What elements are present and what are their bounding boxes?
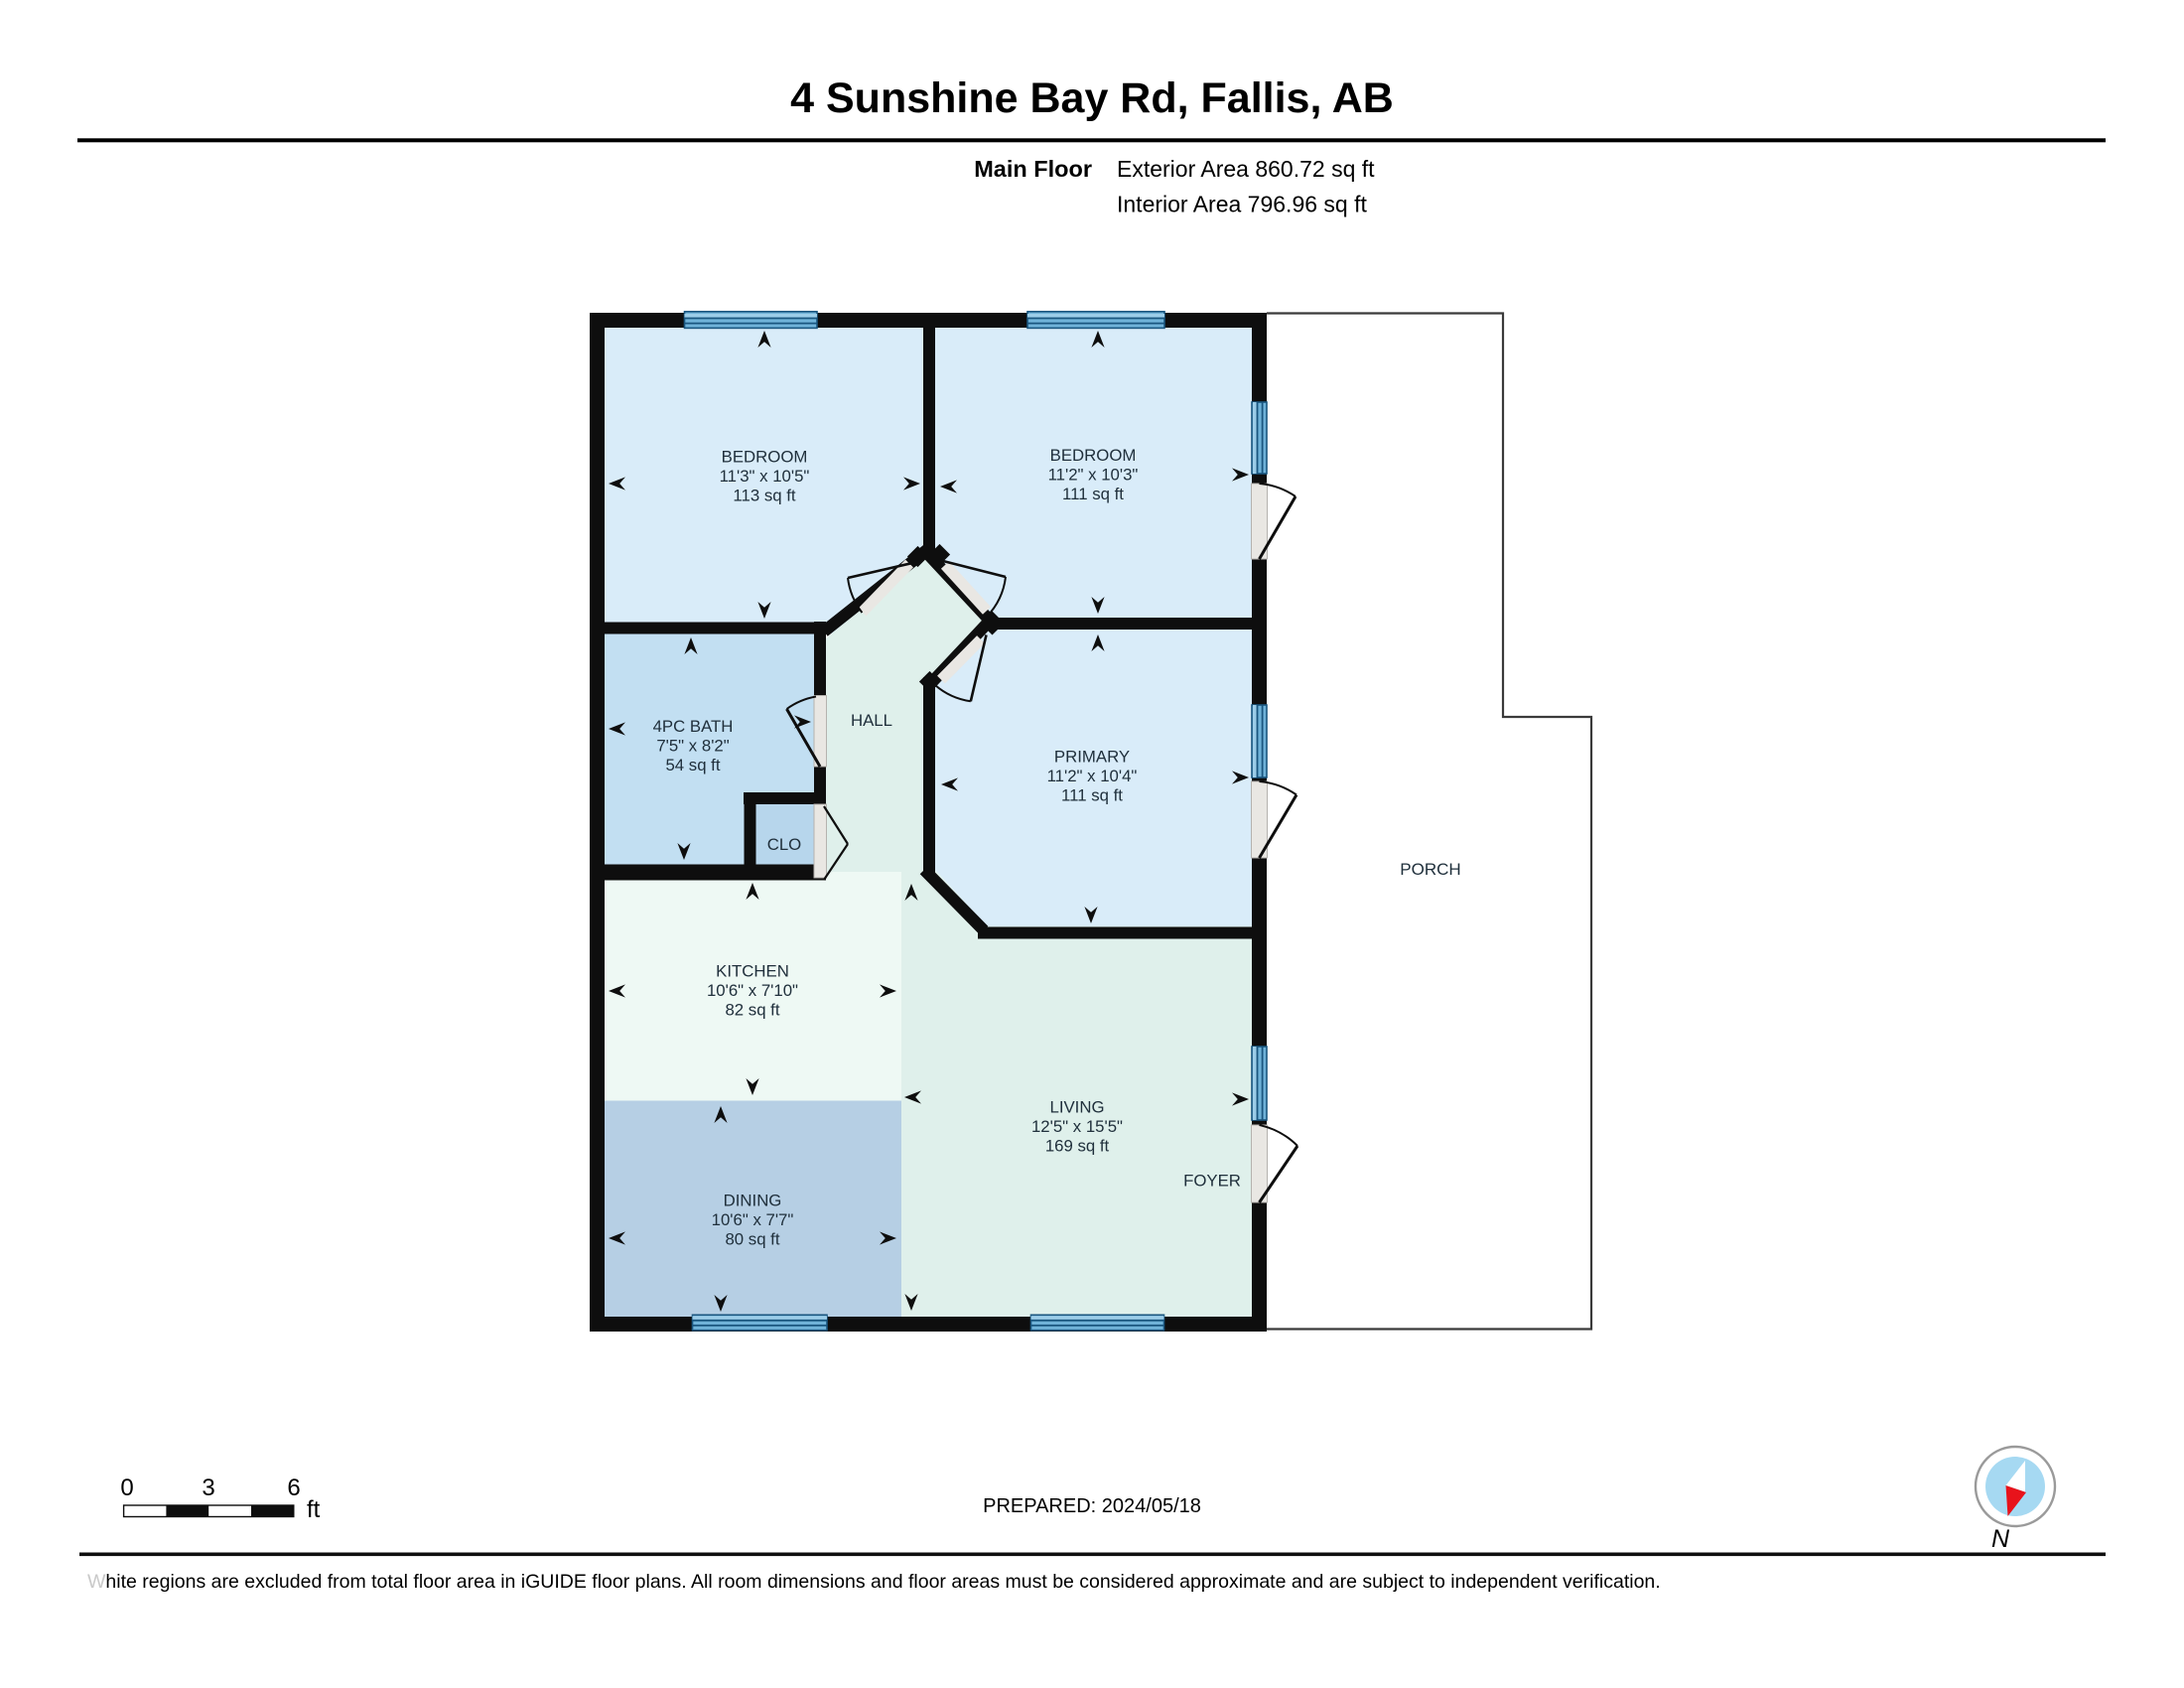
svg-text:169 sq ft: 169 sq ft xyxy=(1045,1137,1110,1156)
svg-text:Main Floor: Main Floor xyxy=(974,156,1092,182)
svg-text:11'3" x 10'5": 11'3" x 10'5" xyxy=(720,467,810,486)
svg-text:10'6" x 7'7": 10'6" x 7'7" xyxy=(712,1210,794,1229)
svg-text:10'6" x 7'10": 10'6" x 7'10" xyxy=(707,981,798,1000)
svg-text:7'5" x 8'2": 7'5" x 8'2" xyxy=(656,737,729,756)
svg-text:PRIMARY: PRIMARY xyxy=(1054,748,1130,767)
svg-text:11'2" x 10'3": 11'2" x 10'3" xyxy=(1048,466,1139,485)
svg-text:KITCHEN: KITCHEN xyxy=(716,962,789,981)
svg-text:FOYER: FOYER xyxy=(1183,1172,1241,1191)
svg-text:80 sq ft: 80 sq ft xyxy=(725,1230,779,1249)
svg-text:PORCH: PORCH xyxy=(1400,860,1460,879)
svg-text:6: 6 xyxy=(287,1475,300,1501)
svg-text:White regions are excluded fro: White regions are excluded from total fl… xyxy=(87,1571,1661,1593)
svg-text:BEDROOM: BEDROOM xyxy=(722,448,808,467)
svg-text:HALL: HALL xyxy=(851,711,892,730)
svg-text:111 sq ft: 111 sq ft xyxy=(1061,786,1123,805)
svg-text:N: N xyxy=(1991,1525,2010,1553)
svg-text:PREPARED: 2024/05/18: PREPARED: 2024/05/18 xyxy=(983,1495,1201,1517)
svg-text:0: 0 xyxy=(120,1475,133,1501)
svg-text:11'2" x 10'4": 11'2" x 10'4" xyxy=(1047,767,1138,785)
svg-text:Exterior Area 860.72 sq ft: Exterior Area 860.72 sq ft xyxy=(1117,156,1375,182)
svg-text:4 Sunshine Bay Rd, Fallis, AB: 4 Sunshine Bay Rd, Fallis, AB xyxy=(790,74,1394,122)
svg-text:113 sq ft: 113 sq ft xyxy=(733,487,795,505)
svg-text:DINING: DINING xyxy=(724,1192,782,1210)
svg-text:82 sq ft: 82 sq ft xyxy=(725,1001,779,1020)
svg-text:CLO: CLO xyxy=(767,835,802,854)
svg-text:3: 3 xyxy=(202,1475,214,1501)
svg-text:LIVING: LIVING xyxy=(1049,1098,1104,1117)
svg-text:4PC BATH: 4PC BATH xyxy=(653,717,734,736)
svg-text:12'5" x 15'5": 12'5" x 15'5" xyxy=(1031,1117,1123,1136)
svg-text:54 sq ft: 54 sq ft xyxy=(665,756,720,774)
svg-text:111 sq ft: 111 sq ft xyxy=(1062,485,1124,503)
svg-text:ft: ft xyxy=(307,1496,321,1523)
svg-text:Interior Area 796.96 sq ft: Interior Area 796.96 sq ft xyxy=(1117,192,1367,217)
svg-text:BEDROOM: BEDROOM xyxy=(1050,446,1137,465)
